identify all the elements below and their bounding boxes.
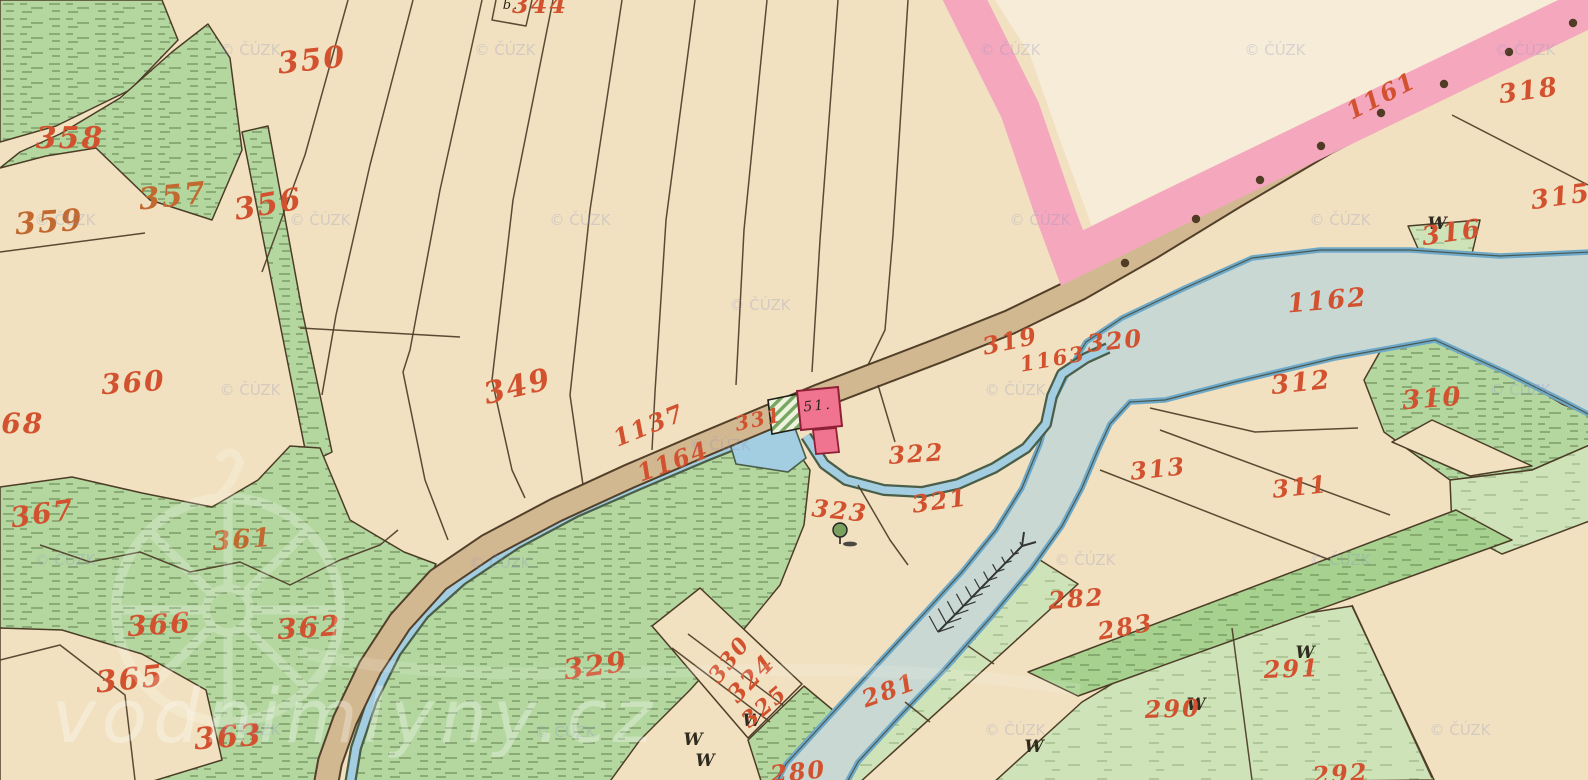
parcel-number-label: 291 [1262, 653, 1320, 684]
parcel-number-label: 358 [36, 121, 105, 156]
cuzk-watermark: © ČÚZK [34, 210, 96, 229]
cuzk-watermark: © ČÚZK [549, 210, 611, 229]
cuzk-watermark: © ČÚZK [1309, 210, 1371, 229]
boundary-stone-dot [1192, 215, 1200, 223]
cuzk-watermark: © ČÚZK [984, 720, 1046, 739]
boundary-stone-dot [1256, 176, 1264, 184]
cuzk-watermark: © ČÚZK [1309, 550, 1371, 569]
parcel-number-label: 311 [1271, 469, 1330, 504]
parcel-number-label: 290 [1143, 693, 1201, 724]
house-number-label: 51. [803, 397, 833, 416]
cuzk-watermark: © ČÚZK [219, 380, 281, 399]
parcel-number-label: 320 [1086, 323, 1145, 358]
cuzk-watermark: © ČÚZK [34, 550, 96, 569]
cuzk-watermark: © ČÚZK [1054, 550, 1116, 569]
cuzk-watermark: © ČÚZK [219, 40, 281, 59]
boundary-stone-dot [1121, 259, 1129, 267]
parcel-number-label: 344 [512, 0, 568, 19]
cuzk-watermark: © ČÚZK [469, 553, 531, 572]
cuzk-watermark: © ČÚZK [289, 210, 351, 229]
boundary-stone-dot [1317, 142, 1325, 150]
cuzk-watermark: © ČÚZK [1429, 720, 1491, 739]
boundary-stone-dot [1440, 80, 1448, 88]
cuzk-watermark: © ČÚZK [979, 40, 1041, 59]
cuzk-watermark: © ČÚZK [474, 40, 536, 59]
cadastral-map-sheet: WWWWWWW344350356358357359360368367361366… [0, 0, 1588, 780]
vodnimlyny-watermark-text: vodnimlyny.cz [52, 674, 658, 760]
parcel-number-label: 292 [1310, 757, 1369, 780]
parcel-number-label: 360 [100, 364, 167, 401]
meadow-w-symbol: W [683, 730, 704, 750]
cuzk-watermark: © ČÚZK [1244, 40, 1306, 59]
cadastral-map: WWWWWWW344350356358357359360368367361366… [0, 0, 1588, 780]
cuzk-watermark: © ČÚZK [689, 435, 751, 454]
cuzk-watermark: © ČÚZK [1489, 380, 1551, 399]
parcel-number-label: 312 [1270, 365, 1333, 401]
mill-outbuilding-masonry [813, 428, 839, 454]
boundary-stone-dot [1569, 19, 1577, 27]
parcel-number-label: 361 [211, 523, 273, 557]
parcel-number-label: 310 [1401, 382, 1463, 416]
parcel-number-label: 323 [810, 493, 869, 528]
parcel-number-label: 350 [276, 40, 348, 82]
cuzk-watermark: © ČÚZK [1494, 40, 1556, 59]
parcel-number-label: 357 [137, 176, 209, 218]
letter-mark-label: b. [503, 0, 519, 13]
meadow-w-symbol: W [1024, 737, 1045, 757]
parcel-number-label: 282 [1046, 582, 1105, 615]
parcel-number-label: 368 [0, 407, 44, 440]
cuzk-watermark: © ČÚZK [729, 295, 791, 314]
meadow-w-symbol: W [695, 751, 716, 771]
cuzk-watermark: © ČÚZK [984, 380, 1046, 399]
parcel-number-label: 322 [887, 437, 945, 470]
parcel-number-label: 313 [1129, 451, 1188, 486]
cuzk-watermark: © ČÚZK [1009, 210, 1071, 229]
